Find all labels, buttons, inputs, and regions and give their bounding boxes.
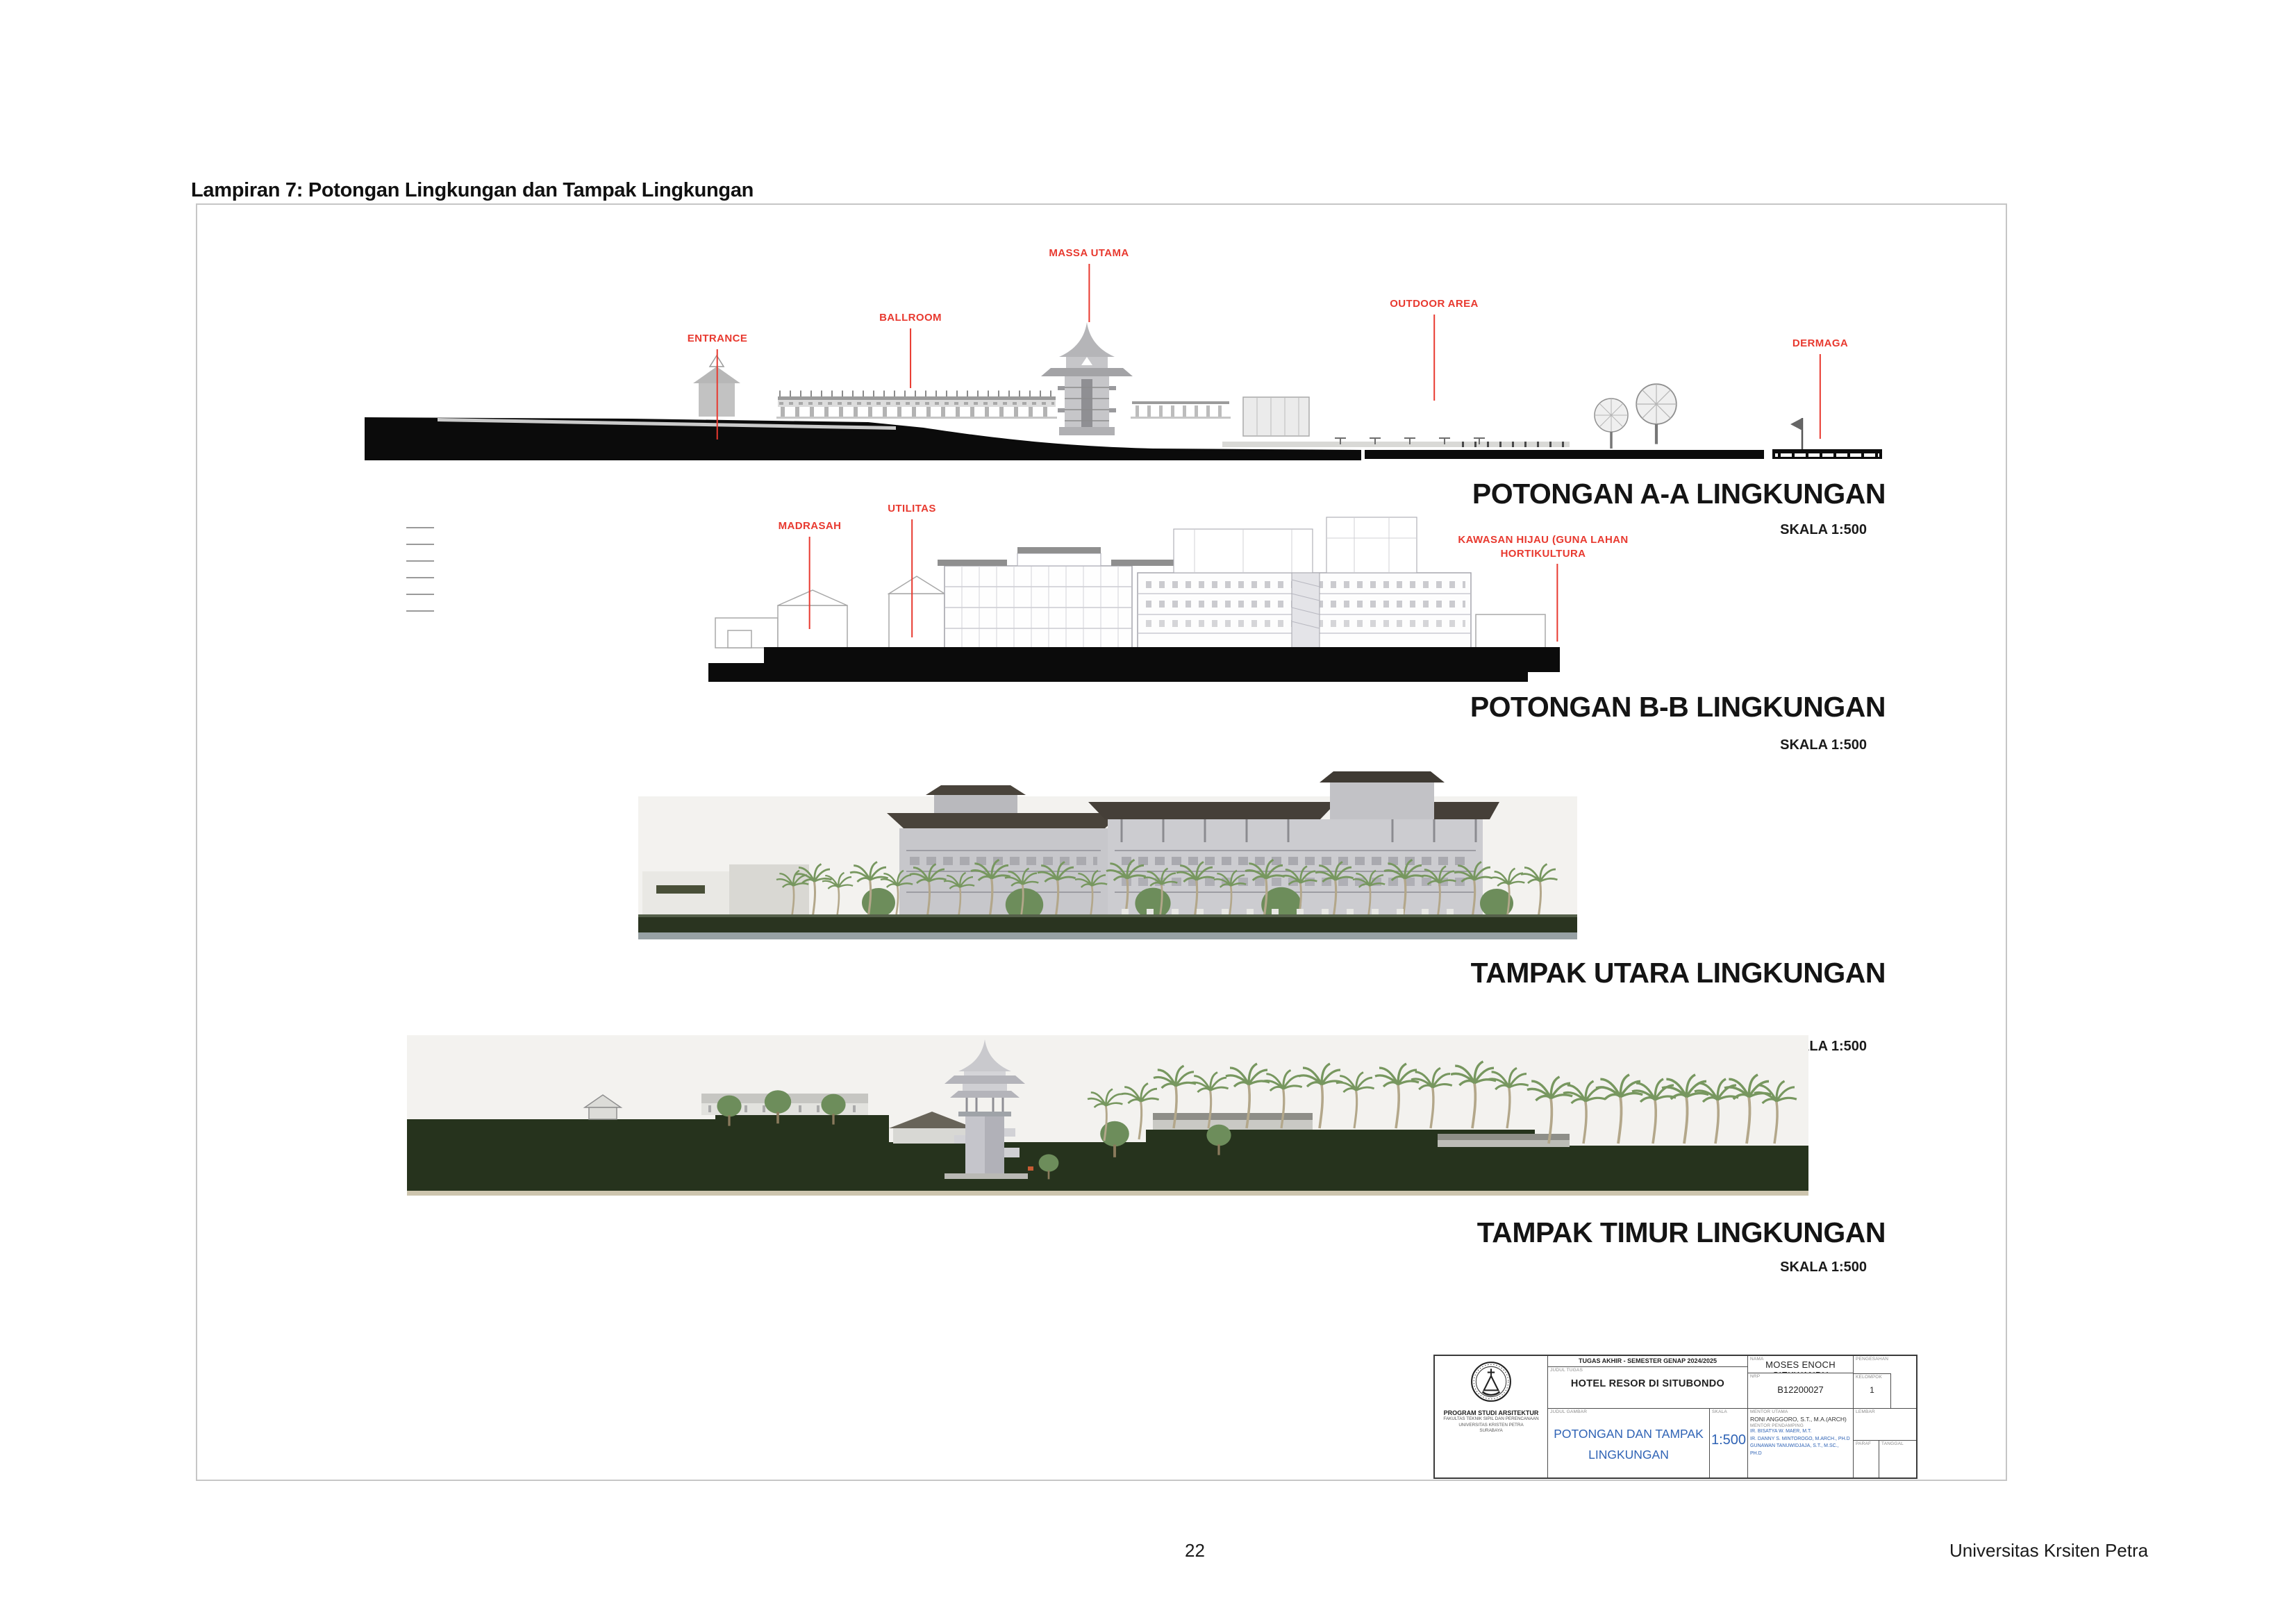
- drawing-title-timur: TAMPAK TIMUR LINGKUNGAN: [1477, 1216, 1886, 1249]
- annotation-label: UTILITAS: [888, 502, 936, 637]
- leader-line: [717, 349, 718, 440]
- annotation-text: ENTRANCE: [688, 332, 748, 346]
- course-title: TUGAS AKHIR - SEMESTER GENAP 2024/2025: [1548, 1356, 1747, 1366]
- annotation-label: OUTDOOR AREA: [1390, 297, 1479, 401]
- drawing-scale-timur: SKALA 1:500: [1780, 1259, 1867, 1275]
- group-label: KELOMPOK: [1854, 1374, 1890, 1380]
- drawing-scale-aa: SKALA 1:500: [1780, 522, 1867, 538]
- title-block-program-cell: PROGRAM STUDI ARSITEKTUR FAKULTAS TEKNIK…: [1435, 1356, 1548, 1477]
- student-name: MOSES ENOCH SIEKWANDY: [1748, 1359, 1853, 1373]
- annotation-label: BALLROOM: [879, 311, 942, 388]
- footer-institution: Universitas Krsiten Petra: [1949, 1540, 2148, 1562]
- page-heading: Lampiran 7: Potongan Lingkungan dan Tamp…: [191, 179, 754, 202]
- drawing-name-label: JUDUL GAMBAR: [1548, 1409, 1709, 1414]
- drawing-title-utara: TAMPAK UTARA LINGKUNGAN: [1471, 957, 1886, 989]
- annotation-text: KAWASAN HIJAU (GUNA LAHAN: [1458, 533, 1628, 547]
- group-number: 1: [1854, 1385, 1890, 1395]
- annotation-label: ENTRANCE: [688, 332, 748, 440]
- scale-value: 1:500: [1710, 1432, 1747, 1448]
- page-number: 22: [1185, 1540, 1205, 1562]
- annotation-text: MASSA UTAMA: [1049, 246, 1129, 260]
- title-block-name-cell: NAMA MOSES ENOCH SIEKWANDY: [1748, 1356, 1854, 1373]
- university-name: UNIVERSITAS KRISTEN PETRA: [1435, 1423, 1547, 1429]
- title-block-group-cell: KELOMPOK 1: [1854, 1373, 1891, 1409]
- annotation-text: OUTDOOR AREA: [1390, 297, 1479, 311]
- annotation-label: DERMAGA: [1792, 337, 1848, 439]
- tampak-timur-drawing: [403, 1024, 1813, 1212]
- annotation-text: BALLROOM: [879, 311, 942, 325]
- title-block-project-cell: JUDUL TUGAS HOTEL RESOR DI SITUBONDO: [1548, 1367, 1748, 1409]
- title-block-nrp-cell: NRP B12200027: [1748, 1373, 1854, 1409]
- title-block-mentor-cell: MENTOR UTAMA RONI ANGGORO, S.T., M.A.(AR…: [1748, 1409, 1854, 1477]
- leader-line: [911, 519, 913, 637]
- title-block-course-cell: TUGAS AKHIR - SEMESTER GENAP 2024/2025: [1548, 1356, 1748, 1367]
- drawing-name-line1: POTONGAN DAN TAMPAK: [1548, 1424, 1709, 1445]
- leader-line: [910, 328, 911, 388]
- annotation-label: MASSA UTAMA: [1049, 246, 1129, 322]
- title-block-scale-cell: SKALA 1:500: [1710, 1409, 1748, 1477]
- mentor-name: IR. BISATYA W. MAER, M.T.: [1750, 1428, 1851, 1436]
- mentor-name: GUNAWAN TANUWIDJAJA, S.T., M.SC., PH.D: [1750, 1443, 1851, 1457]
- annotation-text: MADRASAH: [779, 519, 842, 533]
- sheet-label: LEMBAR: [1854, 1409, 1916, 1414]
- title-block-initials-cell: PARAF: [1854, 1441, 1879, 1477]
- annotation-text: HORTIKULTURA: [1458, 547, 1628, 561]
- ground-section: [365, 417, 1361, 460]
- title-block-drawing-name-cell: JUDUL GAMBAR POTONGAN DAN TAMPAK LINGKUN…: [1548, 1409, 1710, 1477]
- scale-label: SKALA: [1710, 1409, 1747, 1414]
- drawing-title-bb: POTONGAN B-B LINGKUNGAN: [1470, 691, 1886, 723]
- city-name: SURABAYA: [1435, 1428, 1547, 1434]
- drawing-name-line2: LINGKUNGAN: [1548, 1445, 1709, 1466]
- student-id: B12200027: [1748, 1384, 1853, 1395]
- tampak-utara-drawing: [635, 767, 1580, 948]
- leader-line: [1557, 564, 1558, 642]
- title-block: PROGRAM STUDI ARSITEKTUR FAKULTAS TEKNIK…: [1433, 1355, 1918, 1479]
- annotation-text: DERMAGA: [1792, 337, 1848, 351]
- mentor-pendamping-label: MENTOR PENDAMPING: [1748, 1423, 1853, 1428]
- annotation-text: UTILITAS: [888, 502, 936, 516]
- program-name: PROGRAM STUDI ARSITEKTUR: [1435, 1409, 1547, 1416]
- mentor-utama-name: RONI ANGGORO, S.T., M.A.(ARCH): [1748, 1414, 1853, 1423]
- drawing-scale-bb: SKALA 1:500: [1780, 737, 1867, 753]
- approval-label: PENGESAHAN: [1854, 1356, 1916, 1362]
- leader-line: [809, 537, 810, 629]
- project-title: HOTEL RESOR DI SITUBONDO: [1548, 1378, 1747, 1389]
- university-seal: [1470, 1360, 1513, 1403]
- date-label: TANGGAL: [1879, 1441, 1916, 1446]
- leader-line: [1088, 264, 1090, 322]
- initials-label: PARAF: [1854, 1441, 1879, 1446]
- faculty-name: FAKULTAS TEKNIK SIPIL DAN PERENCANAAN: [1435, 1416, 1547, 1423]
- annotation-label: KAWASAN HIJAU (GUNA LAHAN HORTIKULTURA: [1458, 533, 1628, 642]
- student-id-label: NRP: [1748, 1373, 1853, 1379]
- title-block-sheet-cell: LEMBAR: [1854, 1409, 1916, 1441]
- mentor-utama-label: MENTOR UTAMA: [1748, 1409, 1853, 1414]
- potongan-aa-drawing: [354, 312, 1889, 465]
- title-block-date-cell: TANGGAL: [1879, 1441, 1916, 1477]
- leader-line: [1433, 315, 1435, 401]
- document-page: Lampiran 7: Potongan Lingkungan dan Tamp…: [0, 0, 2296, 1624]
- mentor-name: IR. DANNY S. MINTOROGO, M.ARCH., PH.D: [1750, 1436, 1851, 1443]
- annotation-label: MADRASAH: [779, 519, 842, 629]
- project-title-label: JUDUL TUGAS: [1548, 1367, 1747, 1373]
- potongan-bb-drawing: [389, 500, 1611, 694]
- leader-line: [1820, 354, 1821, 439]
